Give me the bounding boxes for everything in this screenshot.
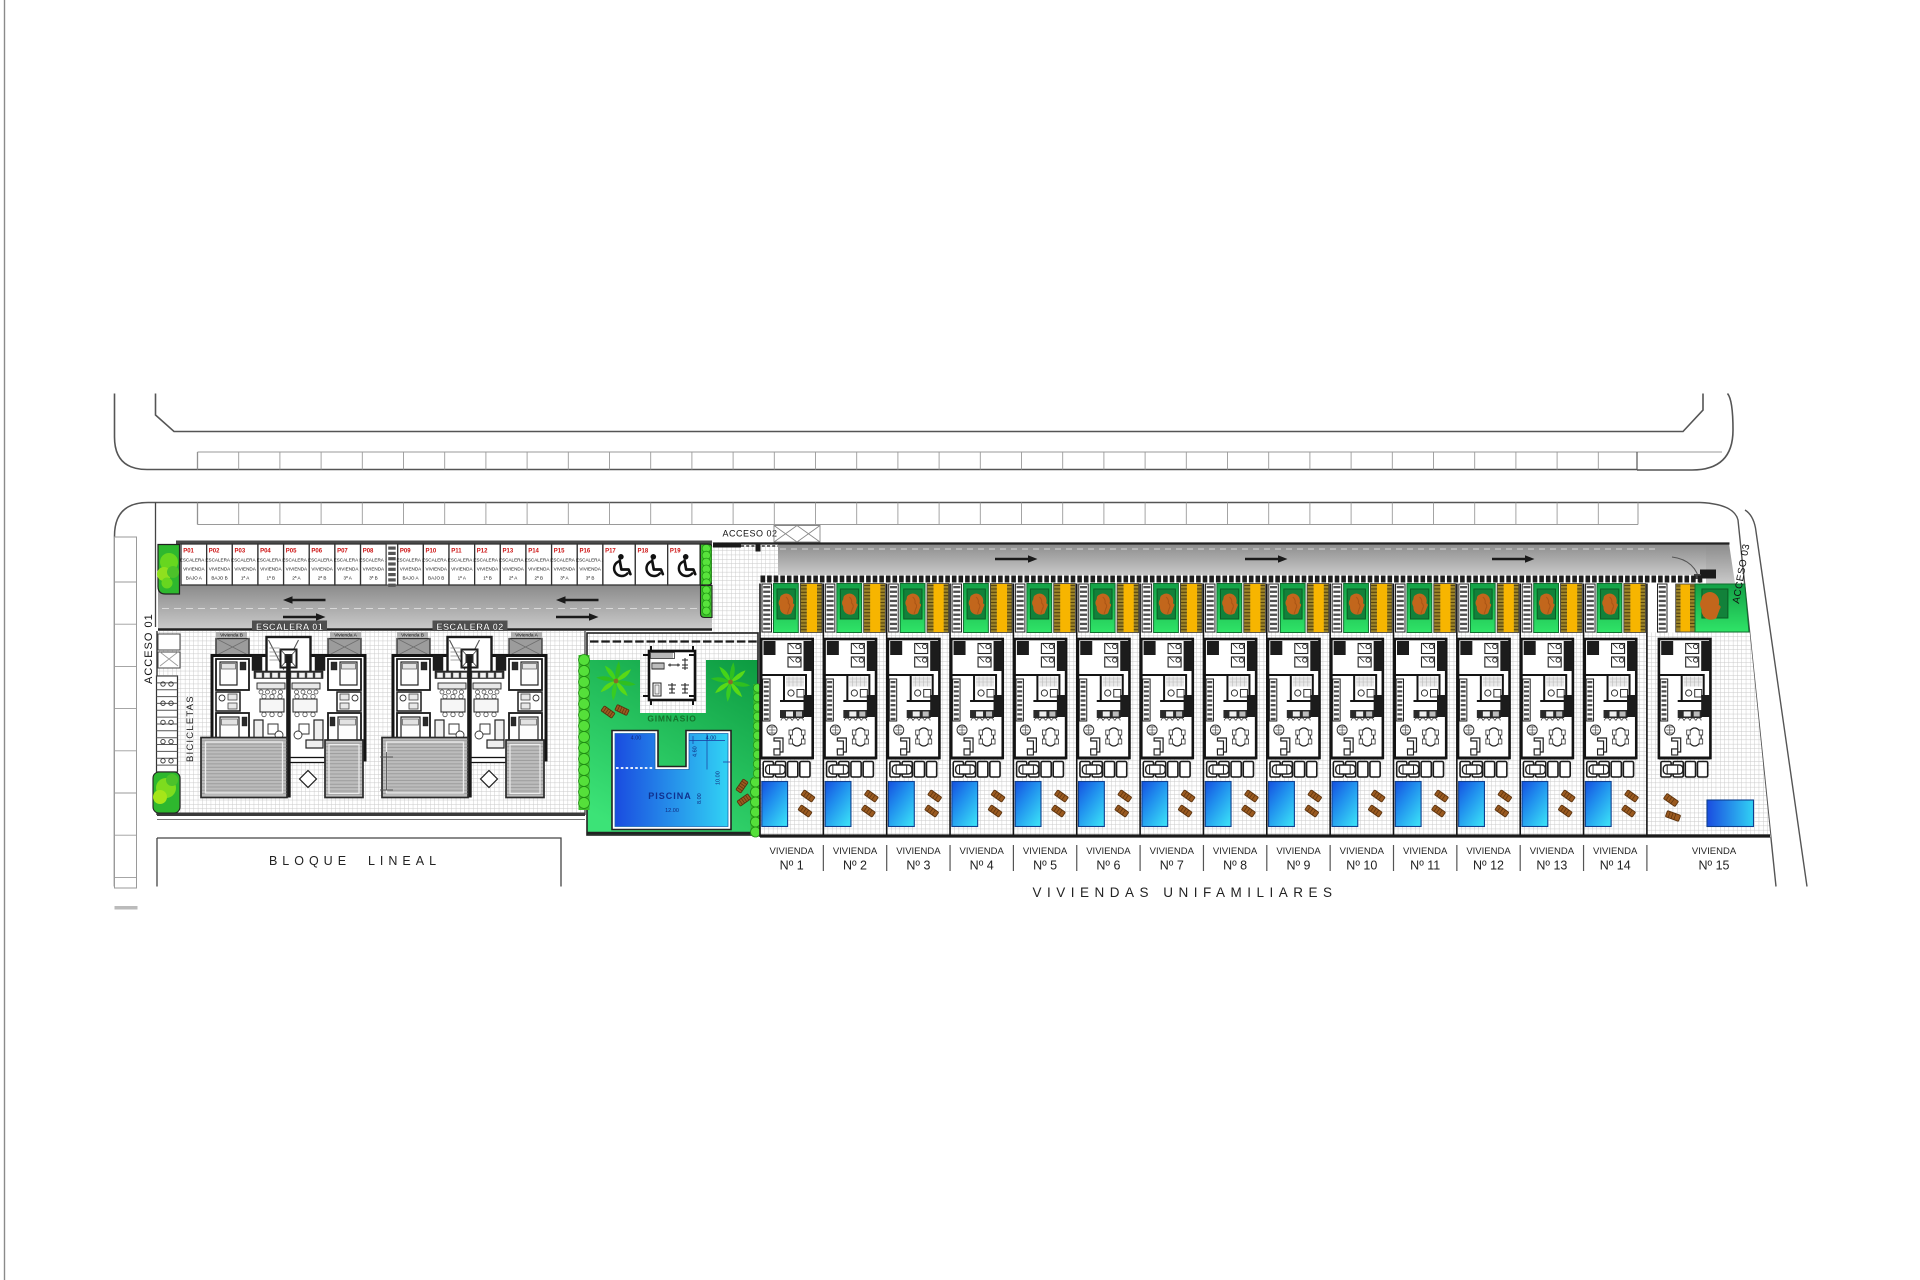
svg-text:1ª B: 1ª B — [266, 576, 275, 581]
svg-text:ESCALERA 2: ESCALERA 2 — [422, 558, 451, 563]
svg-text:8.00: 8.00 — [697, 793, 703, 804]
svg-text:P04: P04 — [260, 549, 271, 555]
svg-text:VIVIENDA: VIVIENDA — [183, 567, 205, 572]
svg-text:VIVIENDA: VIVIENDA — [1276, 846, 1321, 857]
svg-text:ESCALERA 1: ESCALERA 1 — [334, 558, 363, 563]
svg-text:ESCALERA 1: ESCALERA 1 — [180, 558, 209, 563]
svg-text:VIVIENDA: VIVIENDA — [363, 567, 385, 572]
svg-text:P10: P10 — [426, 549, 437, 555]
svg-text:ESCALERA 2: ESCALERA 2 — [499, 558, 528, 563]
svg-text:P09: P09 — [400, 549, 411, 555]
svg-text:VIVIENDA: VIVIENDA — [1692, 846, 1737, 857]
svg-text:Nº 13: Nº 13 — [1536, 859, 1567, 873]
svg-text:2ª B: 2ª B — [318, 576, 327, 581]
svg-text:Vivienda A: Vivienda A — [515, 633, 538, 639]
svg-text:VIVIENDA: VIVIENDA — [234, 567, 256, 572]
svg-text:VIVIENDA: VIVIENDA — [770, 846, 815, 857]
svg-text:P03: P03 — [235, 549, 246, 555]
svg-text:P01: P01 — [183, 549, 194, 555]
svg-text:VIVIENDA: VIVIENDA — [209, 567, 231, 572]
svg-text:Nº 11: Nº 11 — [1410, 859, 1440, 873]
svg-text:VIVIENDA: VIVIENDA — [528, 567, 550, 572]
svg-text:12.00: 12.00 — [665, 808, 679, 814]
svg-text:ESCALERA 02: ESCALERA 02 — [436, 622, 503, 633]
svg-text:P17: P17 — [605, 549, 616, 555]
svg-text:ESCALERA 1: ESCALERA 1 — [308, 558, 337, 563]
svg-text:P11: P11 — [451, 549, 462, 555]
svg-text:VIVIENDA: VIVIENDA — [337, 567, 359, 572]
svg-text:Nº 6: Nº 6 — [1096, 859, 1120, 873]
svg-text:Nº 1: Nº 1 — [780, 859, 804, 873]
svg-text:P13: P13 — [503, 549, 514, 555]
svg-text:P19: P19 — [670, 549, 681, 555]
svg-text:4.00: 4.00 — [706, 736, 717, 742]
svg-text:ESCALERA 1: ESCALERA 1 — [282, 558, 311, 563]
svg-text:1ª A: 1ª A — [458, 576, 467, 581]
svg-text:ESCALERA 1: ESCALERA 1 — [257, 558, 286, 563]
svg-text:VIVIENDA: VIVIENDA — [833, 846, 878, 857]
svg-text:Vivienda A: Vivienda A — [334, 633, 357, 639]
svg-text:VIVIENDA: VIVIENDA — [1213, 846, 1258, 857]
svg-text:VIVIENDA: VIVIENDA — [477, 567, 499, 572]
svg-text:Nº 5: Nº 5 — [1033, 859, 1057, 873]
svg-text:BAJO B: BAJO B — [211, 576, 227, 581]
svg-text:2ª A: 2ª A — [292, 576, 301, 581]
svg-text:VIVIENDA: VIVIENDA — [451, 567, 473, 572]
svg-text:ESCALERA 01: ESCALERA 01 — [256, 622, 324, 633]
svg-text:1ª B: 1ª B — [483, 576, 492, 581]
svg-text:ESCALERA 2: ESCALERA 2 — [525, 558, 554, 563]
svg-text:VIVIENDA: VIVIENDA — [1593, 846, 1638, 857]
svg-text:ESCALERA 1: ESCALERA 1 — [231, 558, 260, 563]
svg-text:VIVIENDA: VIVIENDA — [400, 567, 422, 572]
svg-text:1ª A: 1ª A — [241, 576, 250, 581]
svg-text:VIVIENDA: VIVIENDA — [1150, 846, 1195, 857]
svg-text:ESCALERA 1: ESCALERA 1 — [359, 558, 388, 563]
svg-text:Nº 4: Nº 4 — [970, 859, 994, 873]
svg-text:VIVIENDA: VIVIENDA — [554, 567, 576, 572]
svg-text:VIVIENDA: VIVIENDA — [502, 567, 524, 572]
svg-text:Nº 14: Nº 14 — [1600, 859, 1631, 873]
svg-text:GIMNASIO: GIMNASIO — [647, 714, 696, 724]
svg-text:Nº 15: Nº 15 — [1699, 859, 1730, 873]
svg-text:VIVIENDA: VIVIENDA — [1023, 846, 1068, 857]
svg-text:P02: P02 — [209, 549, 220, 555]
svg-text:3ª B: 3ª B — [369, 576, 378, 581]
svg-text:VIVIENDA: VIVIENDA — [1086, 846, 1131, 857]
svg-text:Nº 7: Nº 7 — [1160, 859, 1184, 873]
svg-text:VIVIENDA: VIVIENDA — [286, 567, 308, 572]
svg-text:P05: P05 — [286, 549, 297, 555]
svg-text:VIVIENDA: VIVIENDA — [579, 567, 601, 572]
svg-text:VIVIENDAS UNIFAMILIARES: VIVIENDAS UNIFAMILIARES — [1032, 885, 1337, 900]
svg-text:2ª B: 2ª B — [534, 576, 543, 581]
svg-text:VIVIENDA: VIVIENDA — [1466, 846, 1511, 857]
svg-text:ESCALERA 2: ESCALERA 2 — [576, 558, 605, 563]
svg-text:PISCINA: PISCINA — [648, 791, 692, 801]
svg-text:VIVIENDA: VIVIENDA — [260, 567, 282, 572]
svg-text:VIVIENDA: VIVIENDA — [425, 567, 447, 572]
svg-text:VIVIENDA: VIVIENDA — [960, 846, 1005, 857]
svg-text:VIVIENDA: VIVIENDA — [1340, 846, 1385, 857]
svg-text:VIVIENDA: VIVIENDA — [1403, 846, 1448, 857]
svg-text:4.00: 4.00 — [631, 736, 642, 742]
svg-text:ESCALERA 2: ESCALERA 2 — [448, 558, 477, 563]
svg-text:P07: P07 — [337, 549, 348, 555]
svg-text:Nº 10: Nº 10 — [1346, 859, 1377, 873]
svg-text:ACCESO 01: ACCESO 01 — [143, 613, 155, 684]
svg-text:ESCALERA 2: ESCALERA 2 — [550, 558, 579, 563]
svg-text:4.60: 4.60 — [693, 746, 699, 757]
svg-text:P15: P15 — [554, 549, 565, 555]
svg-text:P18: P18 — [638, 549, 649, 555]
svg-text:VIVIENDA: VIVIENDA — [1530, 846, 1575, 857]
svg-text:ESCALERA 2: ESCALERA 2 — [396, 558, 425, 563]
svg-text:VIVIENDA: VIVIENDA — [311, 567, 333, 572]
svg-text:3ª B: 3ª B — [586, 576, 595, 581]
svg-text:Nº 9: Nº 9 — [1286, 859, 1310, 873]
svg-text:3ª A: 3ª A — [560, 576, 569, 581]
svg-text:P16: P16 — [580, 549, 591, 555]
svg-text:BAJO A: BAJO A — [186, 576, 203, 581]
svg-text:BAJO B: BAJO B — [428, 576, 444, 581]
svg-text:P12: P12 — [477, 549, 488, 555]
svg-text:3ª A: 3ª A — [344, 576, 353, 581]
svg-text:ESCALERA 1: ESCALERA 1 — [205, 558, 234, 563]
svg-text:P08: P08 — [363, 549, 374, 555]
svg-text:Vivienda B: Vivienda B — [401, 633, 424, 639]
svg-text:VIVIENDA: VIVIENDA — [896, 846, 941, 857]
svg-text:Nº 2: Nº 2 — [843, 859, 867, 873]
svg-text:BLOQUE LINEAL: BLOQUE LINEAL — [269, 854, 441, 868]
svg-text:ACCESO 02: ACCESO 02 — [722, 529, 777, 539]
svg-text:BAJO A: BAJO A — [402, 576, 419, 581]
svg-text:Nº 3: Nº 3 — [906, 859, 930, 873]
svg-text:Vivienda B: Vivienda B — [220, 633, 243, 639]
svg-text:P14: P14 — [528, 549, 539, 555]
svg-text:P06: P06 — [311, 549, 322, 555]
svg-text:10.00: 10.00 — [716, 771, 722, 785]
svg-text:ESCALERA 2: ESCALERA 2 — [473, 558, 502, 563]
svg-text:BICICLETAS: BICICLETAS — [185, 695, 196, 762]
svg-text:Nº 8: Nº 8 — [1223, 859, 1247, 873]
svg-text:2ª A: 2ª A — [509, 576, 518, 581]
svg-text:Nº 12: Nº 12 — [1473, 859, 1504, 873]
